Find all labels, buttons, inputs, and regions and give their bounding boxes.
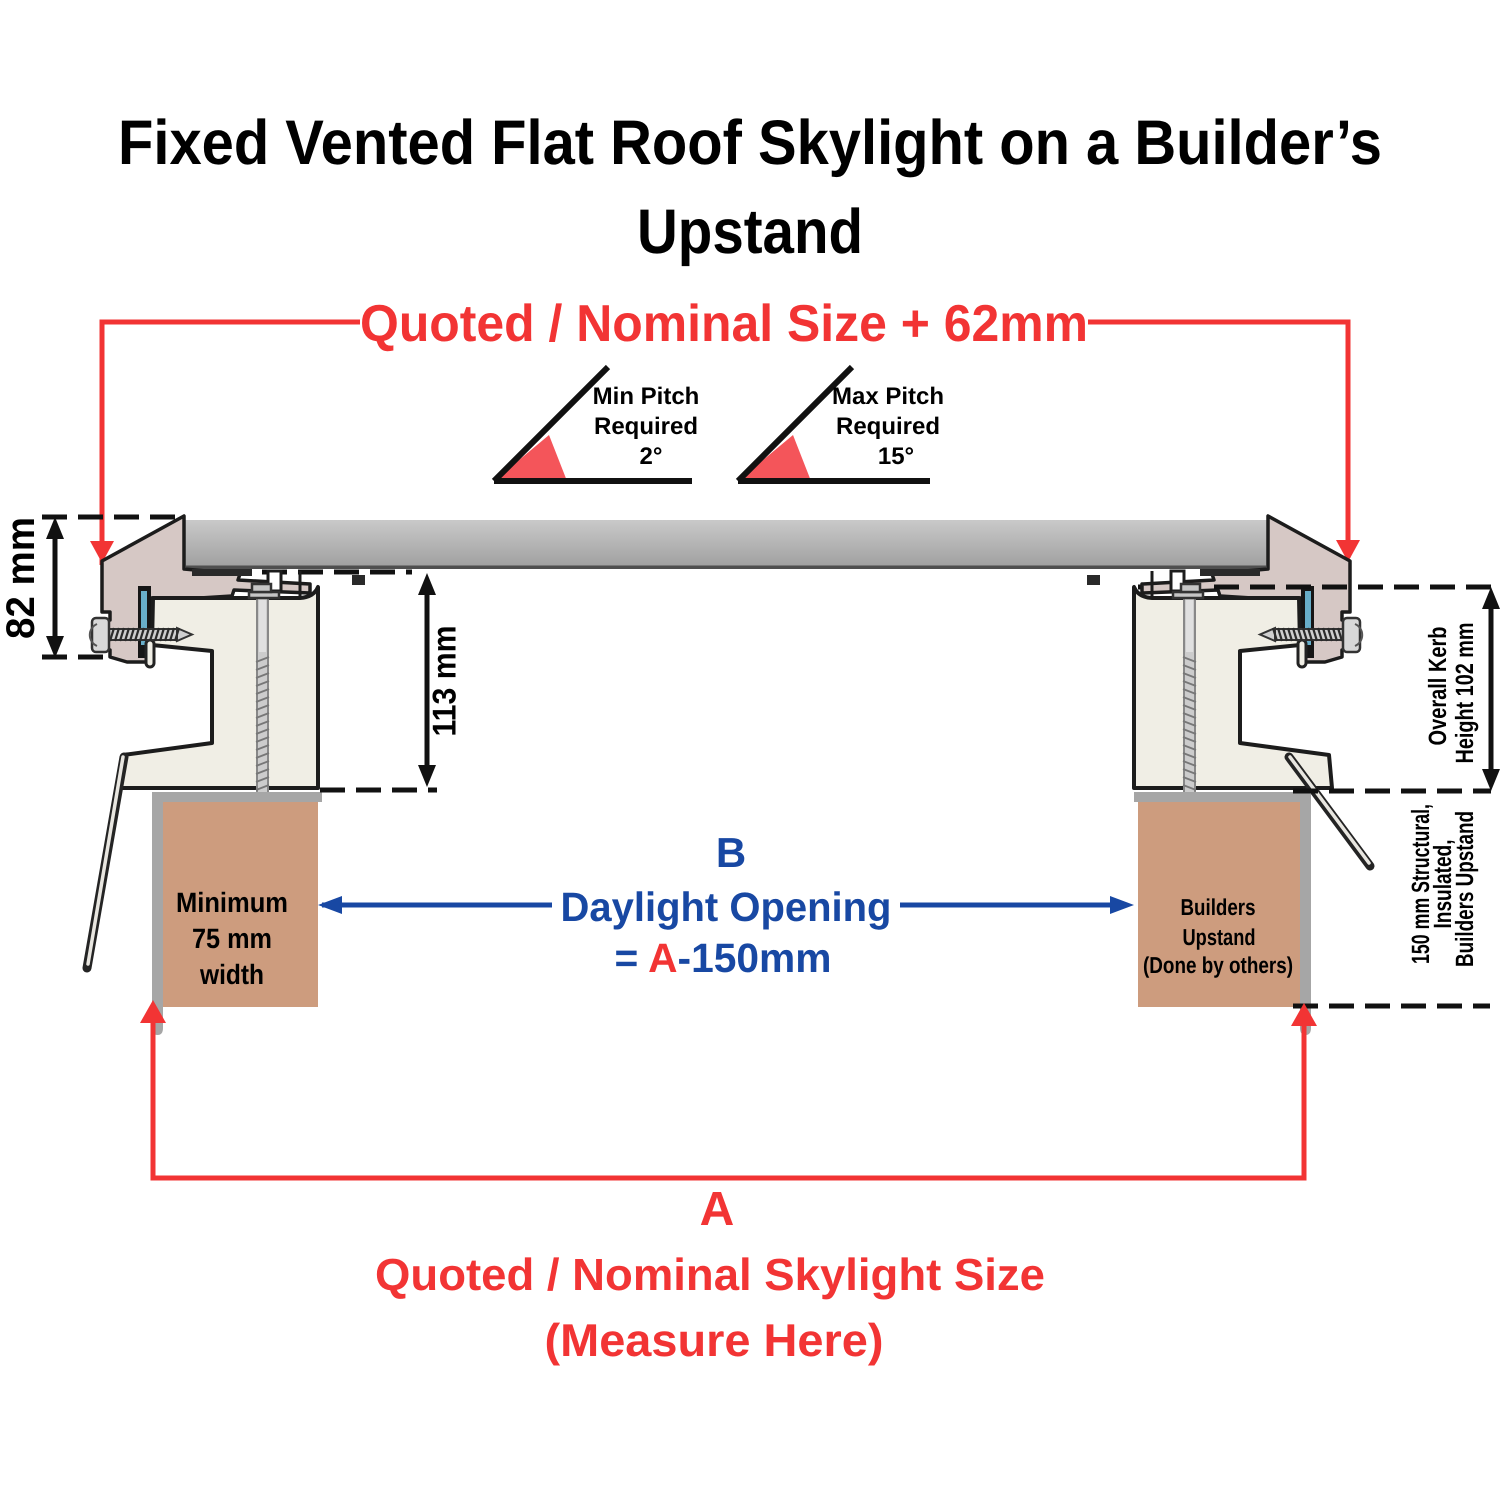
svg-text:(Measure Here): (Measure Here)	[545, 1314, 884, 1366]
svg-text:Builders Upstand: Builders Upstand	[1451, 811, 1479, 967]
svg-text:(Done by others): (Done by others)	[1143, 952, 1293, 978]
svg-text:B: B	[716, 829, 746, 876]
svg-text:Fixed Vented Flat Roof Skyligh: Fixed Vented Flat Roof Skylight on a Bui…	[118, 108, 1382, 178]
svg-text:Builders: Builders	[1181, 894, 1256, 920]
svg-text:Required: Required	[836, 413, 940, 440]
svg-text:Required: Required	[594, 413, 698, 440]
svg-text:Quoted / Nominal Size + 62mm: Quoted / Nominal Size + 62mm	[360, 295, 1088, 353]
svg-text:Min Pitch: Min Pitch	[593, 383, 700, 410]
svg-text:Overall Kerb: Overall Kerb	[1424, 627, 1452, 746]
svg-text:Quoted / Nominal Skylight Size: Quoted / Nominal Skylight Size	[375, 1249, 1045, 1300]
svg-text:Height 102 mm: Height 102 mm	[1451, 623, 1479, 764]
svg-text:82 mm: 82 mm	[0, 517, 43, 639]
svg-text:75 mm: 75 mm	[192, 923, 272, 954]
svg-text:Daylight Opening: Daylight Opening	[561, 884, 892, 930]
svg-text:Upstand: Upstand	[637, 197, 863, 267]
svg-text:2°: 2°	[640, 443, 663, 470]
svg-text:15°: 15°	[878, 443, 914, 470]
svg-text:A: A	[700, 1183, 735, 1236]
svg-text:= A-150mm: = A-150mm	[615, 935, 832, 981]
svg-text:Max Pitch: Max Pitch	[832, 383, 944, 410]
svg-text:Minimum: Minimum	[176, 887, 288, 918]
svg-text:width: width	[199, 959, 264, 990]
svg-text:Upstand: Upstand	[1183, 924, 1256, 950]
svg-text:113 mm: 113 mm	[426, 626, 463, 737]
